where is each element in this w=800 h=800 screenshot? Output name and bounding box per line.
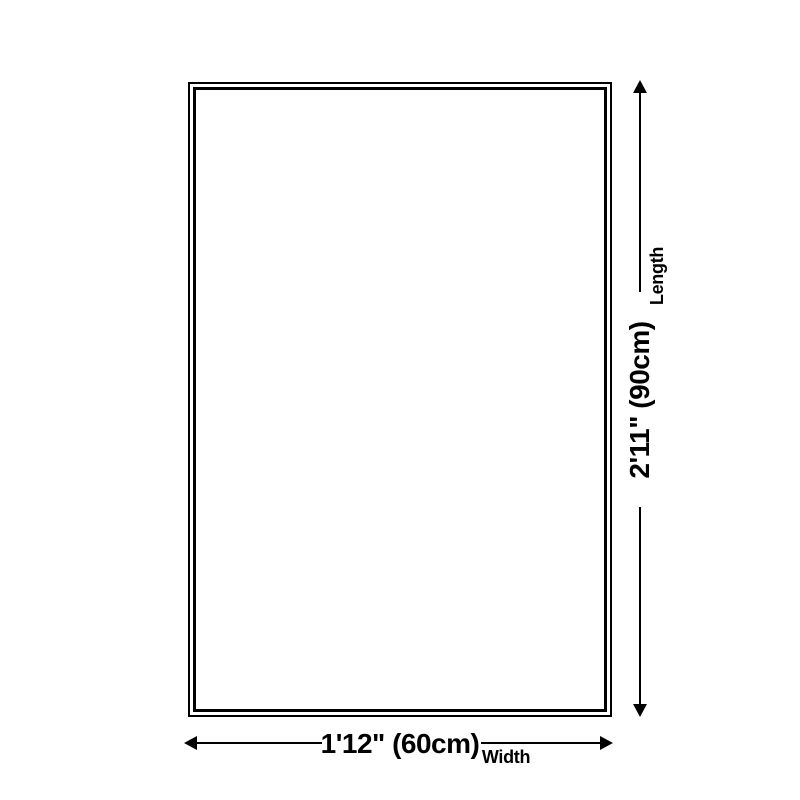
- width-value: 1'12" (60cm): [321, 730, 480, 758]
- length-value: 2'11" (90cm): [626, 321, 654, 478]
- arrow-right-icon: [600, 736, 613, 750]
- length-label: Length: [648, 247, 666, 305]
- width-dimension-line-right: [481, 742, 602, 744]
- width-dimension-line-left: [196, 742, 322, 744]
- product-outline-outer: [188, 82, 612, 717]
- arrow-down-icon: [633, 704, 647, 717]
- length-dimension-line-bottom: [639, 507, 641, 706]
- product-dimension-diagram: Length 2'11" (90cm) 1'12" (60cm) Width: [0, 0, 800, 800]
- length-dimension-line-top: [639, 91, 641, 292]
- product-outline-inner: [193, 87, 607, 712]
- width-label: Width: [482, 748, 530, 766]
